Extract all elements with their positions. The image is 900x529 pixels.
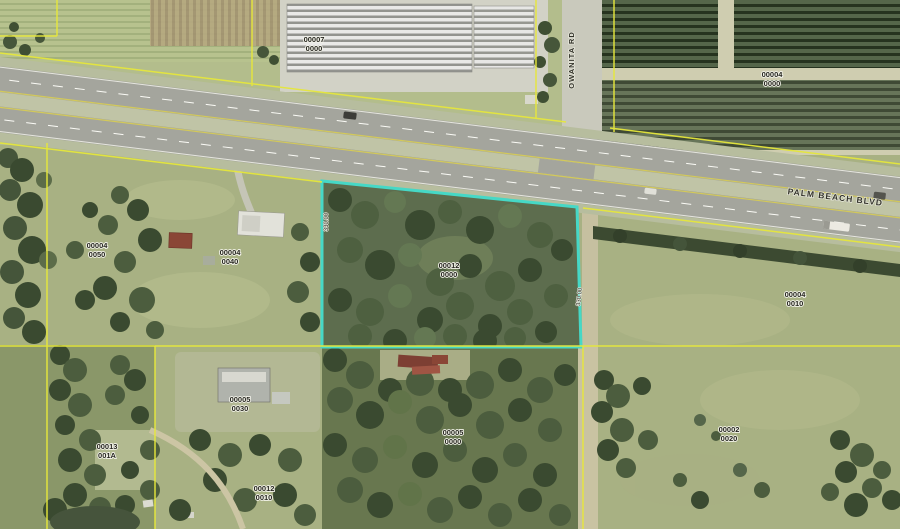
svg-text:0000: 0000 xyxy=(764,79,781,88)
svg-text:0040: 0040 xyxy=(222,257,239,266)
svg-text:00004: 00004 xyxy=(220,248,242,257)
svg-text:0010: 0010 xyxy=(787,299,804,308)
svg-text:0000: 0000 xyxy=(441,270,458,279)
owanita-rd-label: OWANITA RD xyxy=(567,31,576,89)
svg-text:00007: 00007 xyxy=(304,35,325,44)
dirt-road-south xyxy=(578,347,598,529)
parcel-label-00013-001A: 00013 001A xyxy=(97,442,118,460)
svg-text:00005: 00005 xyxy=(230,395,251,404)
parcel-label-00004-0040: 00004 0040 xyxy=(220,248,242,266)
svg-text:0050: 0050 xyxy=(89,250,106,259)
parcel-label-00007-0000: 00007 0000 xyxy=(304,35,325,53)
parcel-label-00004-0050: 00004 0050 xyxy=(87,241,109,259)
map-canvas[interactable]: PALM BEACH BLVD OWANITA RD 330.00 330.00… xyxy=(0,0,900,529)
parcel-label-00004-0000: 00004 0000 xyxy=(762,70,784,88)
parcel-label-00012-0010: 00012 0010 xyxy=(254,484,275,502)
parcel-label-00004-0010: 00004 0010 xyxy=(785,290,807,308)
parcel-label-00005-0000: 00005 0000 xyxy=(443,428,464,446)
parcel-label-00005-0030: 00005 0030 xyxy=(230,395,251,413)
parcel-label-00002-0020: 00002 0020 xyxy=(719,425,740,443)
svg-text:0010: 0010 xyxy=(256,493,273,502)
svg-text:001A: 001A xyxy=(98,451,117,460)
svg-text:00004: 00004 xyxy=(87,241,109,250)
svg-text:00013: 00013 xyxy=(97,442,118,451)
svg-text:0000: 0000 xyxy=(445,437,462,446)
svg-text:00002: 00002 xyxy=(719,425,740,434)
parcel-label-00012-0000-highlighted: 00012 0000 xyxy=(439,261,460,279)
svg-text:0000: 0000 xyxy=(306,44,323,53)
svg-text:00012: 00012 xyxy=(439,261,460,270)
svg-text:00004: 00004 xyxy=(762,70,784,79)
svg-text:00004: 00004 xyxy=(785,290,807,299)
svg-text:0030: 0030 xyxy=(232,404,249,413)
red-roof-shed xyxy=(169,233,193,249)
svg-text:0020: 0020 xyxy=(721,434,738,443)
svg-text:00012: 00012 xyxy=(254,484,275,493)
svg-text:00005: 00005 xyxy=(443,428,464,437)
aerial-parcel-map[interactable]: PALM BEACH BLVD OWANITA RD 330.00 330.00… xyxy=(0,0,900,529)
parcel-dimension-west-label: 330.00 xyxy=(324,212,330,231)
